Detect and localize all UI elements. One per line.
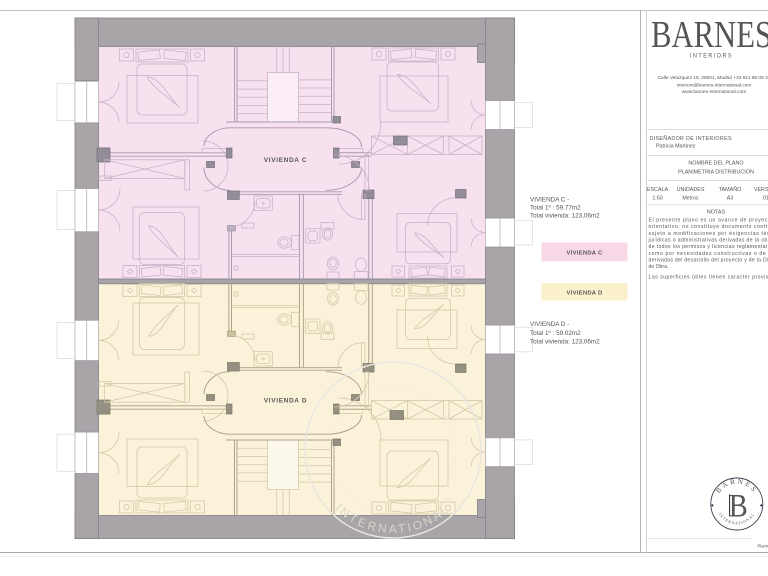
- svg-text:de Obra.: de Obra.: [649, 264, 669, 270]
- svg-text:VIVIENDA D -: VIVIENDA D -: [530, 321, 569, 328]
- svg-text:Planimetria: Planimetria: [758, 544, 768, 549]
- svg-text:sujeto a modificaciones por ex: sujeto a modificaciones por exigencias t…: [649, 231, 768, 237]
- svg-text:BARNES: BARNES: [651, 14, 768, 56]
- svg-text:1:50: 1:50: [652, 196, 662, 202]
- svg-text:PLANIMETRIA DISTRIBUCION: PLANIMETRIA DISTRIBUCION: [678, 169, 754, 175]
- svg-text:Total 1º : 59.77m2: Total 1º : 59.77m2: [530, 205, 581, 212]
- svg-text:VIVIENDA C: VIVIENDA C: [567, 251, 603, 257]
- svg-text:NOTAS: NOTAS: [707, 210, 726, 216]
- svg-text:TAMAÑO: TAMAÑO: [719, 186, 742, 193]
- svg-text:ESCALA: ESCALA: [647, 187, 669, 193]
- svg-text:Total vivienda: 123,06m2: Total vivienda: 123,06m2: [530, 339, 600, 346]
- svg-text:Las superficies útiles tienen: Las superficies útiles tienen caracter p…: [649, 275, 768, 281]
- svg-text:DISEÑADOR DE INTERIORES: DISEÑADOR DE INTERIORES: [650, 135, 732, 142]
- svg-text:www.barnes-international.com: www.barnes-international.com: [682, 89, 746, 95]
- svg-text:como por necesidades construct: como por necesidades constructivas o de …: [649, 251, 768, 257]
- svg-text:01: 01: [763, 196, 768, 202]
- svg-text:interiors@barnes-international: interiors@barnes-international.com: [677, 83, 752, 89]
- svg-text:VIVIENDA D: VIVIENDA D: [567, 290, 603, 296]
- svg-text:Patricia Martinez: Patricia Martinez: [656, 144, 696, 150]
- svg-text:derivadas del desarrollo del p: derivadas del desarrollo del proyecto y …: [649, 257, 768, 263]
- svg-text:VIVIENDA C: VIVIENDA C: [264, 157, 307, 164]
- svg-text:de todos los permisos y licenc: de todos los permisos y licencias reglam…: [649, 244, 768, 250]
- svg-text:B: B: [729, 489, 748, 525]
- svg-text:Total 1º : 59.02m2: Total 1º : 59.02m2: [530, 330, 581, 337]
- svg-text:VIVIENDA C -: VIVIENDA C -: [530, 197, 569, 204]
- svg-text:jurídicas o administrativas de: jurídicas o administrativas derivadas de…: [648, 237, 768, 243]
- svg-text:INTERIORS: INTERIORS: [690, 53, 733, 60]
- svg-text:Total vivienda: 123,06m2: Total vivienda: 123,06m2: [530, 212, 600, 219]
- svg-text:UNIDADES: UNIDADES: [677, 187, 705, 193]
- svg-text:El presente plano es un avance: El presente plano es un avance de proyec…: [649, 218, 768, 224]
- svg-text:A3: A3: [727, 196, 734, 202]
- svg-text:VIVIENDA D: VIVIENDA D: [264, 398, 307, 405]
- svg-text:orientativo, no constituye doc: orientativo, no constituye documento con…: [649, 224, 768, 230]
- svg-text:NOMBRE DEL PLANO: NOMBRE DEL PLANO: [688, 161, 743, 167]
- svg-text:VERSION: VERSION: [754, 187, 768, 193]
- svg-text:Calle Velazquez 15, 28001, Mad: Calle Velazquez 15, 28001, Madrid +34 91…: [658, 75, 768, 81]
- svg-text:Metros: Metros: [682, 196, 699, 202]
